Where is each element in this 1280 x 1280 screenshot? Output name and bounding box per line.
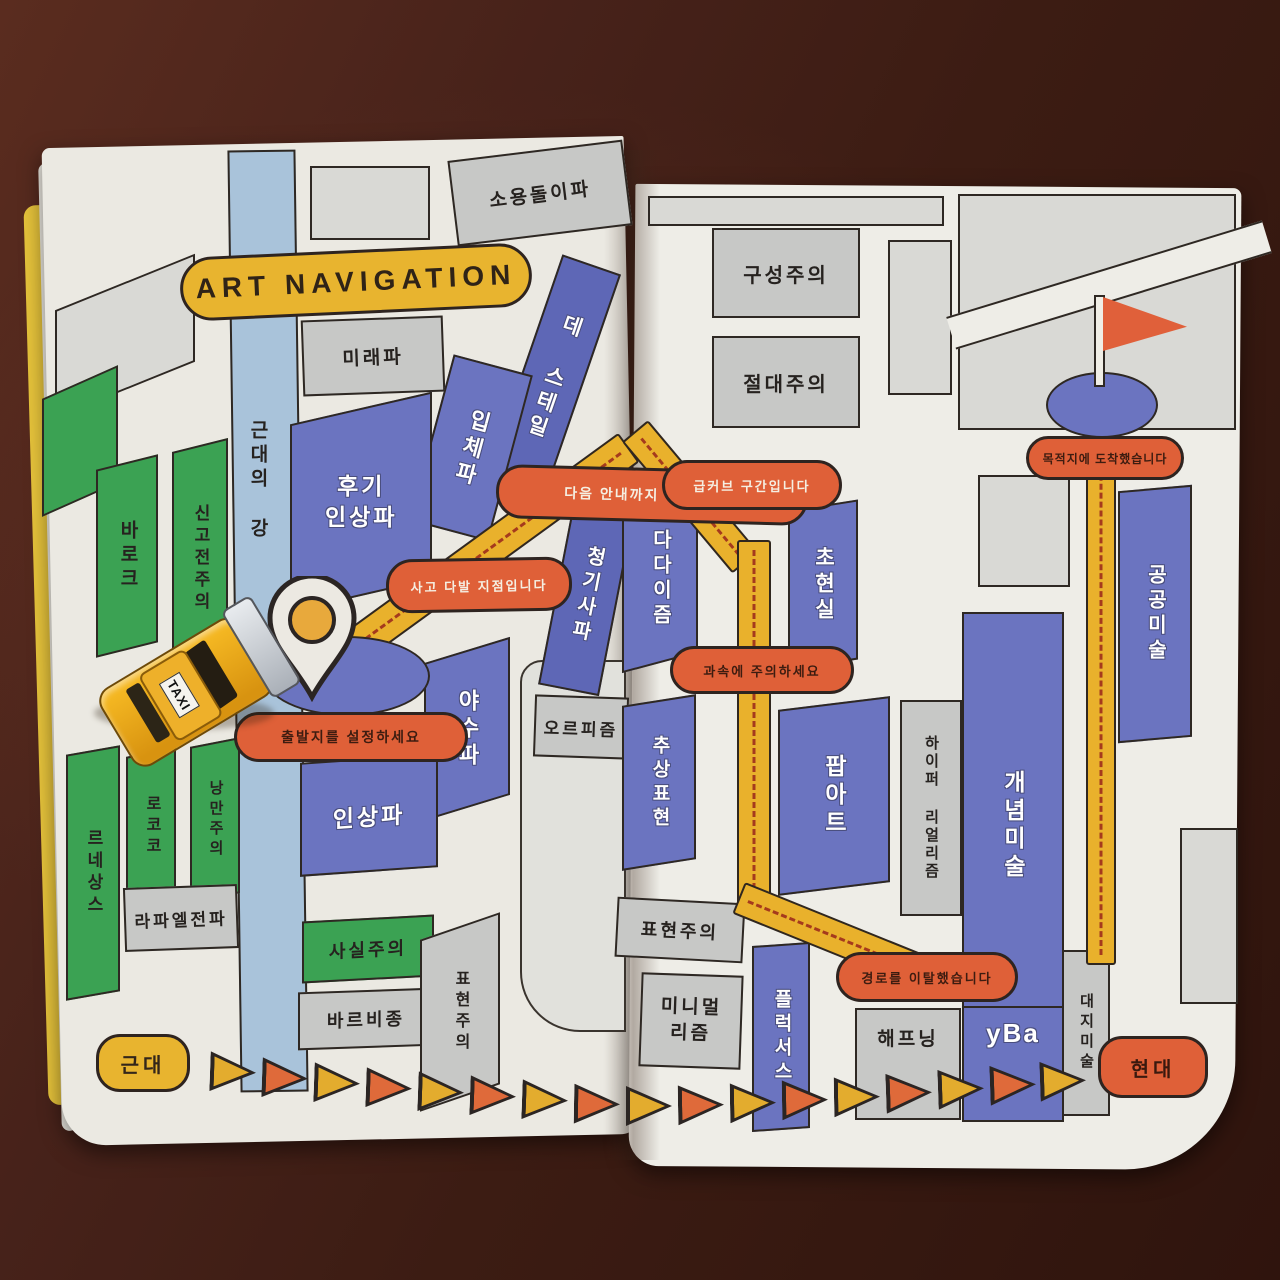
map-block-label: 르네상스 [81, 829, 106, 917]
map-block-unlabeled [648, 196, 944, 226]
badge-start-modern: 근대 [96, 1034, 190, 1092]
map-block-label: 사실주의 [329, 934, 407, 964]
map-block-label: 개념미술 [996, 770, 1030, 882]
map-block-label: 청기사파 [563, 543, 611, 647]
map-block-label: 추상표현 [646, 735, 673, 831]
map-block-label: 소용돌이파 [488, 173, 593, 212]
taxi-roof-label: TAXI [165, 677, 195, 713]
callout-label: 과속에 주의하세요 [703, 661, 820, 680]
map-block-label: 미래파 [342, 341, 404, 370]
block-realism: 사실주의 [302, 915, 434, 984]
map-block-label: 로코코 [139, 795, 163, 858]
map-block-label: 초현실 [808, 546, 838, 624]
map-block-label: 팝아트 [817, 754, 851, 838]
block-yba: yBa [962, 1006, 1064, 1122]
block-suprematism: 절대주의 [712, 336, 860, 428]
block-orphism: 오르피즘 [533, 694, 629, 759]
block-minimalism: 미니멀 리즘 [638, 972, 743, 1070]
map-block-unlabeled [1180, 828, 1238, 1004]
map-block-label: 입체파 [445, 405, 497, 492]
map-block-label: 라파엘전파 [134, 904, 228, 932]
map-block-label: 절대주의 [743, 368, 829, 397]
photo-of-open-book: { "banner": { "title": "ART NAVIGATION" … [0, 0, 1280, 1280]
route-road-destination-vertical [1086, 420, 1116, 965]
callout-label: 목적지에 도착했습니다 [1043, 450, 1168, 467]
callout-arrived: 목적지에 도착했습니다 [1026, 436, 1184, 480]
map-block-label: 구성주의 [743, 259, 829, 288]
callout-label: 급커브 구간입니다 [693, 476, 810, 495]
map-block-label: 하이퍼 리얼리즘 [921, 735, 942, 881]
block-impressionism: 인상파 [300, 753, 438, 877]
map-block-label: 오르피즘 [543, 713, 618, 741]
callout-sharp-curve: 급커브 구간입니다 [662, 460, 842, 510]
badge-label: 현대 [1131, 1053, 1176, 1082]
title-banner-label: ART NAVIGATION [195, 259, 517, 306]
block-barbizon: 바르비종 [298, 988, 434, 1051]
block-renaissance: 르네상스 [66, 745, 120, 1001]
block-expressionism-right: 표현주의 [615, 897, 746, 964]
callout-off-route: 경로를 이탈했습니다 [836, 952, 1018, 1002]
badge-label: 근대 [121, 1049, 166, 1078]
map-block-label: 낭만주의 [205, 780, 226, 860]
badge-end-contemporary: 현대 [1098, 1036, 1208, 1098]
map-block-label: 근대의 강 [244, 420, 271, 542]
block-futurism: 미래파 [301, 316, 446, 397]
map-block-label: yBa [986, 1018, 1040, 1049]
callout-watch-speed: 과속에 주의하세요 [670, 646, 854, 694]
block-surrealism: 초현실 [788, 499, 858, 670]
route-road-right-vertical [737, 540, 771, 908]
block-pop-art: 팝아트 [778, 696, 890, 896]
block-constructivism: 구성주의 [712, 228, 860, 318]
map-block-label: 바르비종 [327, 1005, 405, 1034]
map-block-label: 인상파 [333, 795, 405, 834]
map-block-label: 미니멀 리즘 [659, 994, 722, 1047]
block-abstract-expressionism: 추상표현 [622, 694, 696, 871]
block-public-art: 공공미술 [1118, 485, 1192, 743]
taxi-roof-sign: TAXI [159, 672, 200, 719]
map-block-unlabeled [888, 240, 952, 395]
map-block-unlabeled [978, 475, 1070, 587]
map-block-label: 바로크 [114, 520, 141, 592]
block-pre-raphaelites: 라파엘전파 [123, 884, 239, 952]
map-block-label: 표현주의 [640, 915, 720, 945]
map-block-label: 대지미술 [1076, 993, 1097, 1073]
map-block-label: 표현주의 [448, 970, 472, 1054]
map-block-unlabeled [310, 166, 430, 240]
map-block-label: 플럭서스 [768, 989, 795, 1085]
map-block-label: 다다이즘 [646, 529, 675, 629]
block-hyperrealism: 하이퍼 리얼리즘 [900, 700, 962, 916]
block-land-art: 대지미술 [1062, 950, 1110, 1116]
callout-label: 경로를 이탈했습니다 [861, 968, 992, 987]
map-block-label: 후기 인상파 [325, 471, 397, 533]
map-block-label: 해프닝 [877, 1024, 938, 1051]
callout-label: 사고 다발 지점입니다 [410, 574, 547, 595]
taxi-toy: TAXI [88, 600, 303, 775]
map-block-label: 신고전주의 [188, 504, 213, 614]
callout-accident-zone: 사고 다발 지점입니다 [386, 556, 573, 613]
map-block-label: 공공미술 [1141, 564, 1170, 664]
